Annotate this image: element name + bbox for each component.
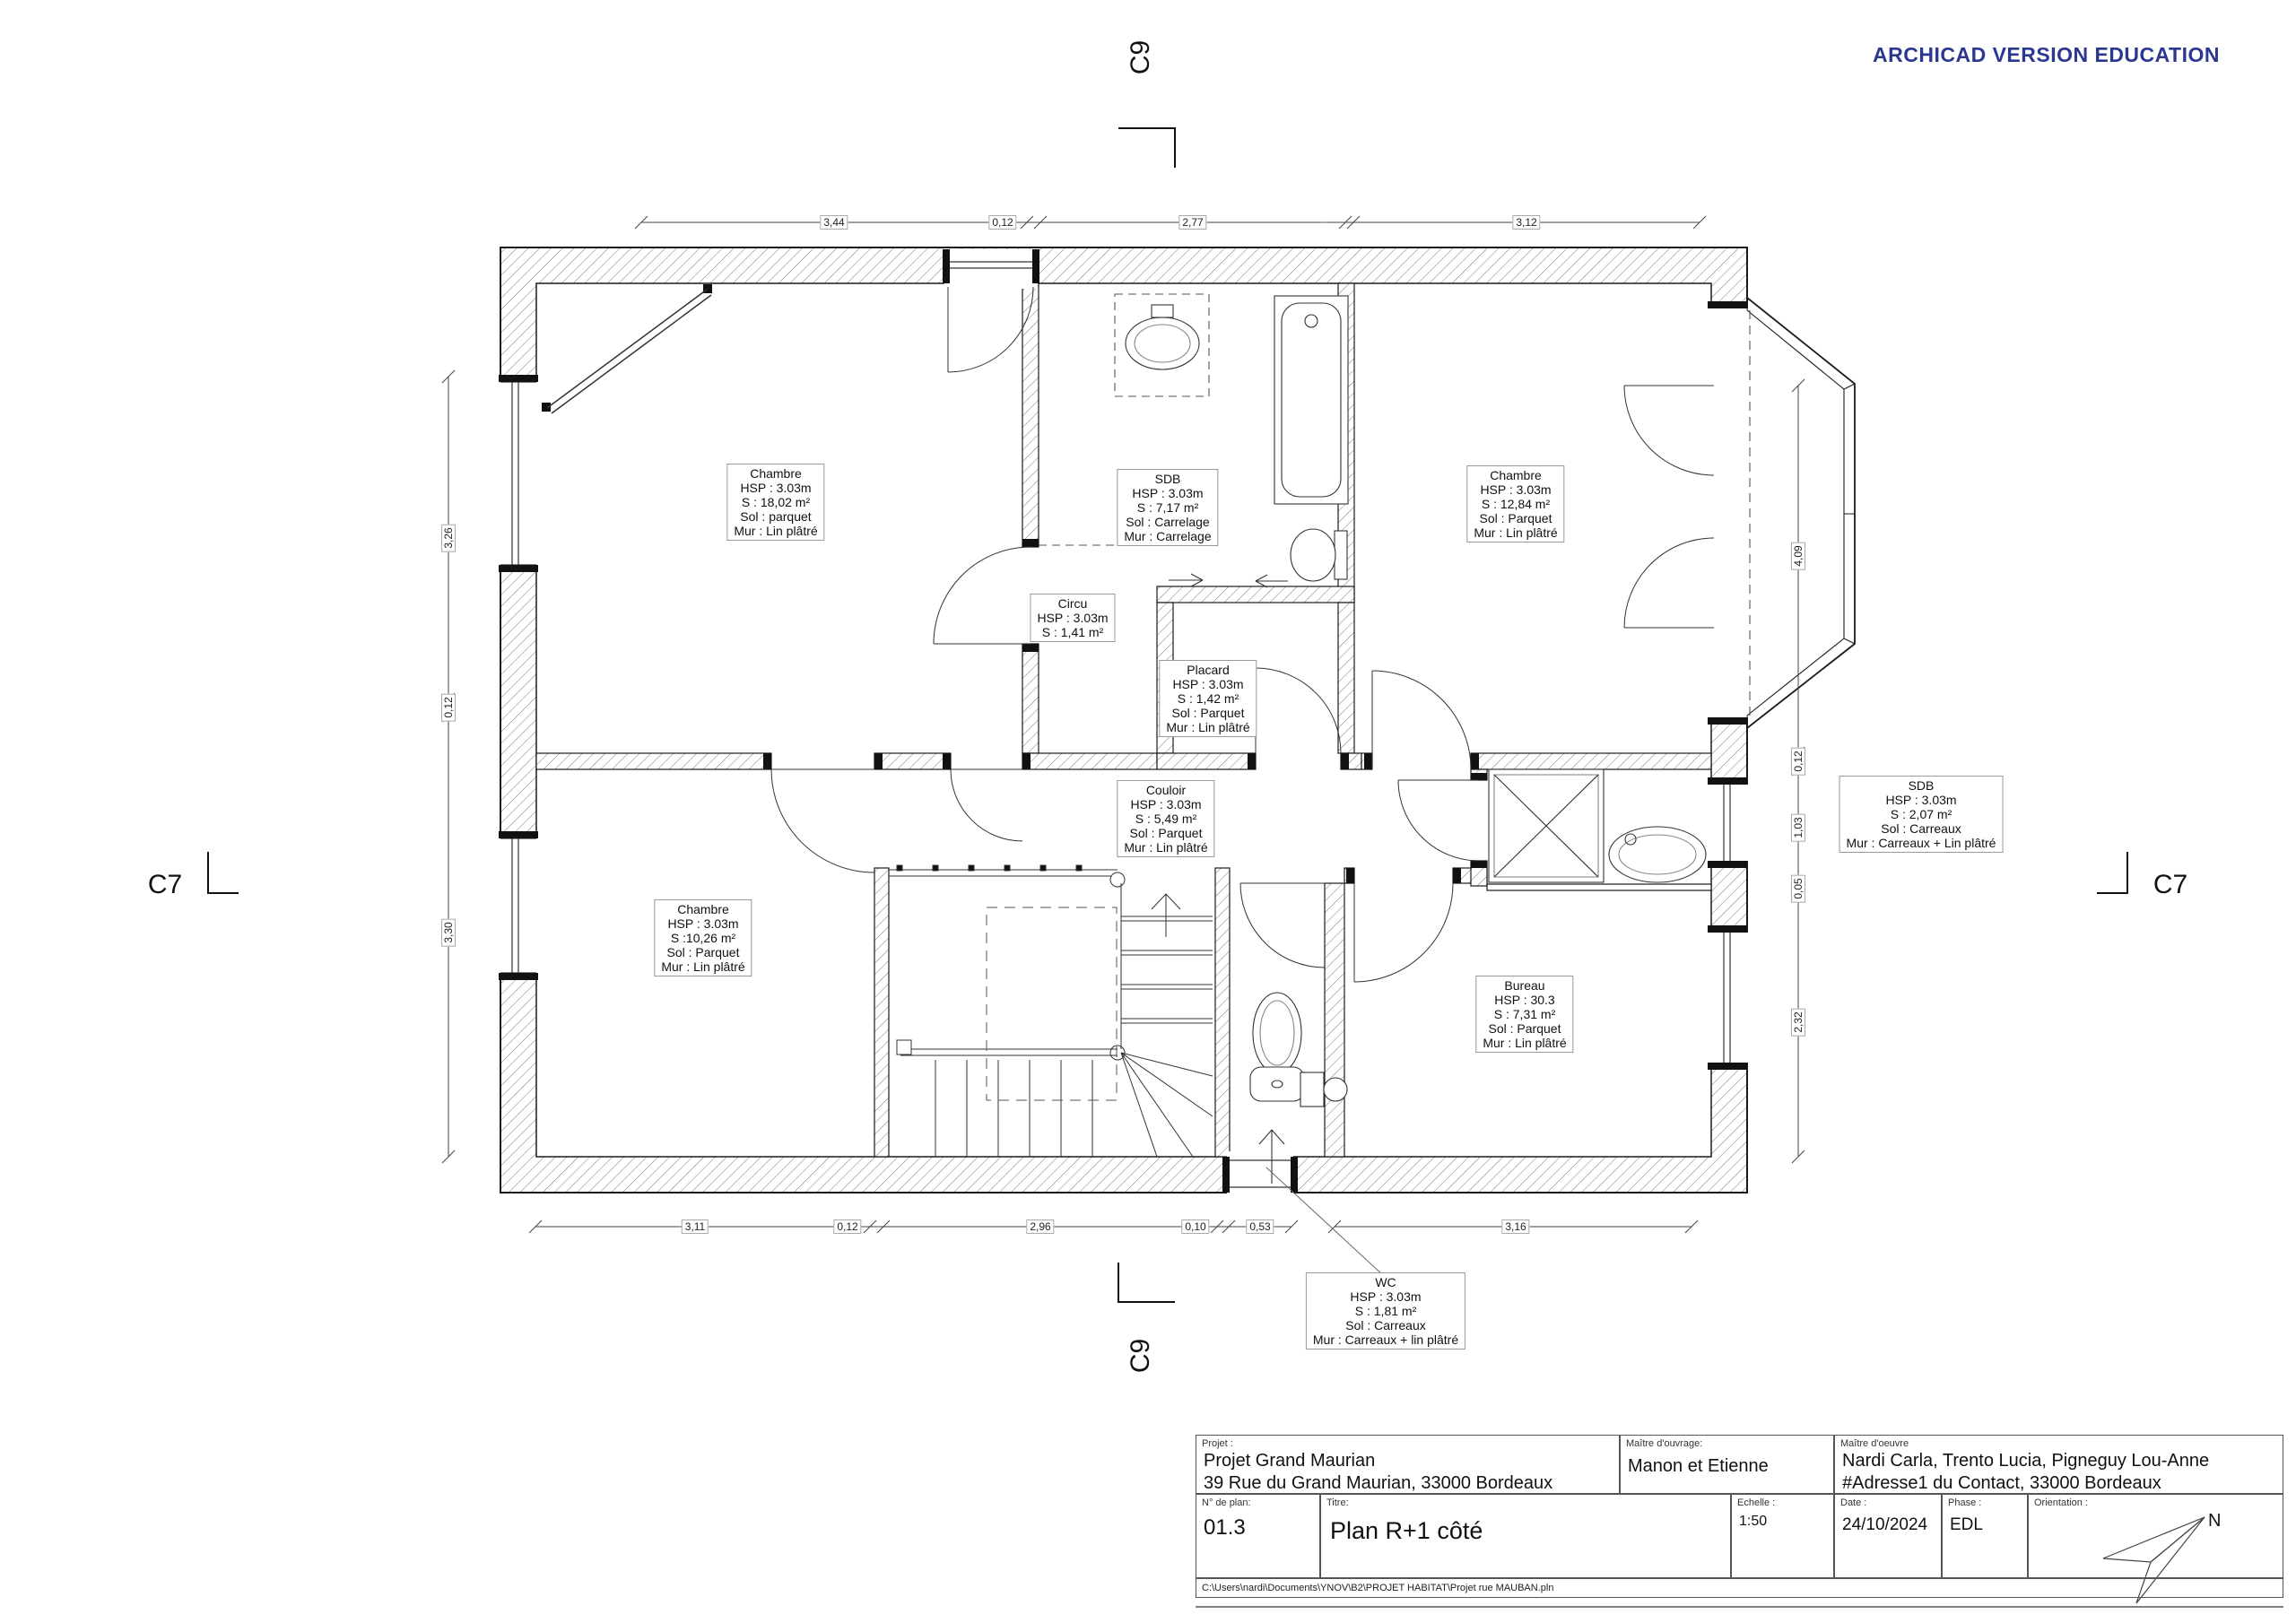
dim-left-3: 3,30	[441, 918, 456, 946]
room-area: S : 18,02 m²	[734, 495, 817, 509]
room-wall: Mur : Lin plâtré	[1474, 525, 1557, 540]
dim-right-2: 0,12	[1791, 747, 1805, 775]
room-name: Placard	[1166, 663, 1249, 677]
room-label-chambre-nw: Chambre HSP : 3.03m S : 18,02 m² Sol : p…	[726, 464, 824, 541]
room-area: S : 1,42 m²	[1166, 691, 1249, 706]
room-floor: Sol : Carreaux	[1313, 1318, 1458, 1332]
titleblock-architect-cell: Maître d'oeuvre Nardi Carla, Trento Luci…	[1834, 1435, 2283, 1494]
dim-top-2: 0,12	[988, 215, 1016, 230]
date-label: Date :	[1840, 1497, 1935, 1508]
room-name: Bureau	[1483, 978, 1566, 993]
room-label-wc: WC HSP : 3.03m S : 1,81 m² Sol : Carreau…	[1306, 1272, 1465, 1350]
phase-label: Phase :	[1948, 1497, 2022, 1508]
dim-left-2: 0,12	[441, 693, 456, 721]
room-wall: Mur : Lin plâtré	[661, 959, 744, 974]
room-area: S :10,26 m²	[661, 931, 744, 945]
room-hsp: HSP : 3.03m	[734, 481, 817, 495]
titleblock-owner-cell: Maître d'ouvrage: Manon et Etienne	[1620, 1435, 1834, 1494]
room-floor: Sol : Parquet	[1166, 706, 1249, 720]
dim-right-4: 0,05	[1791, 874, 1805, 902]
title-label: Titre:	[1326, 1497, 1725, 1508]
owner-name: Manon et Etienne	[1628, 1456, 1826, 1477]
room-label-sdb-est: SDB HSP : 3.03m S : 2,07 m² Sol : Carrea…	[1839, 776, 2004, 853]
toilet-fixture	[1250, 993, 1304, 1101]
dim-bottom-5: 0,53	[1246, 1219, 1274, 1234]
titleblock-date-cell: Date : 24/10/2024	[1834, 1494, 1942, 1578]
washbasin-fixture-sdb-top	[1256, 529, 1347, 587]
room-hsp: HSP : 3.03m	[1847, 793, 1996, 807]
room-area: S : 1,41 m²	[1037, 625, 1108, 639]
scale-label: Echelle :	[1737, 1497, 1828, 1508]
room-label-placard: Placard HSP : 3.03m S : 1,42 m² Sol : Pa…	[1159, 660, 1257, 737]
bathtub-fixture	[1274, 296, 1348, 504]
dimension-lines	[442, 216, 1805, 1233]
drawing-title: Plan R+1 côté	[1330, 1517, 1721, 1545]
room-floor: Sol : parquet	[734, 509, 817, 524]
room-name: SDB	[1124, 472, 1211, 486]
room-label-chambre-sw: Chambre HSP : 3.03m S :10,26 m² Sol : Pa…	[654, 899, 752, 976]
room-area: S : 7,31 m²	[1483, 1007, 1566, 1021]
dim-bottom-6: 3,16	[1501, 1219, 1529, 1234]
section-label-c7-left: C7	[148, 870, 182, 900]
owner-label: Maître d'ouvrage:	[1626, 1438, 1828, 1449]
room-area: S : 12,84 m²	[1474, 497, 1557, 511]
project-label: Projet :	[1202, 1438, 1613, 1449]
architect-address: #Adresse1 du Contact, 33000 Bordeaux	[1842, 1473, 2275, 1494]
dim-top-4	[1319, 221, 1326, 223]
sink-fixture-sdb-top	[1115, 294, 1209, 396]
section-label-c7-right: C7	[2153, 870, 2187, 900]
phase-value: EDL	[1950, 1515, 2020, 1535]
stairs	[889, 865, 1213, 1157]
room-area: S : 7,17 m²	[1124, 500, 1211, 515]
room-floor: Sol : Parquet	[1474, 511, 1557, 525]
dim-right-3: 1,03	[1791, 813, 1805, 841]
room-wall: Mur : Lin plâtré	[1166, 720, 1249, 734]
titleblock-plan-number-cell: N° de plan: 01.3	[1196, 1494, 1320, 1578]
titleblock-scale-cell: Echelle : 1:50	[1731, 1494, 1834, 1578]
section-label-c9-bottom: C9	[1126, 1339, 1156, 1373]
titleblock-title-cell: Titre: Plan R+1 côté	[1320, 1494, 1731, 1578]
room-hsp: HSP : 3.03m	[1037, 611, 1108, 625]
room-floor: Sol : Carrelage	[1124, 515, 1211, 529]
bathtub-fixture-sdb-right	[1609, 827, 1706, 882]
room-area: S : 5,49 m²	[1124, 811, 1207, 826]
floor-plan-page: ARCHICAD VERSION EDUCATION	[0, 0, 2296, 1623]
plan-number: 01.3	[1204, 1515, 1312, 1541]
titleblock-orientation-cell: Orientation :	[2028, 1494, 2283, 1578]
architect-label: Maître d'oeuvre	[1840, 1438, 2277, 1449]
room-name: SDB	[1847, 778, 1996, 793]
room-label-couloir: Couloir HSP : 3.03m S : 5,49 m² Sol : Pa…	[1117, 780, 1214, 857]
architect-names: Nardi Carla, Trento Lucia, Pigneguy Lou-…	[1842, 1451, 2275, 1471]
room-name: WC	[1313, 1275, 1458, 1289]
orientation-label: Orientation :	[2034, 1497, 2277, 1508]
titleblock-file-path: C:\Users\nardi\Documents\YNOV\B2\PROJET …	[1196, 1578, 2283, 1598]
project-address: 39 Rue du Grand Maurian, 33000 Bordeaux	[1204, 1473, 1612, 1494]
room-area: S : 1,81 m²	[1313, 1304, 1458, 1318]
dim-right-1: 4,09	[1791, 542, 1805, 569]
room-hsp: HSP : 3.03m	[1313, 1289, 1458, 1304]
room-label-chambre-ne: Chambre HSP : 3.03m S : 12,84 m² Sol : P…	[1466, 465, 1564, 542]
archicad-watermark: ARCHICAD VERSION EDUCATION	[1873, 43, 2220, 67]
dim-bottom-3: 2,96	[1026, 1219, 1054, 1234]
room-floor: Sol : Parquet	[661, 945, 744, 959]
room-hsp: HSP : 3.03m	[1166, 677, 1249, 691]
room-hsp: HSP : 30.3	[1483, 993, 1566, 1007]
room-hsp: HSP : 3.03m	[1124, 486, 1211, 500]
section-label-c9-top: C9	[1126, 40, 1156, 74]
scale-value: 1:50	[1739, 1514, 1826, 1530]
room-hsp: HSP : 3.03m	[1474, 482, 1557, 497]
dim-bottom-4: 0,10	[1181, 1219, 1209, 1234]
room-hsp: HSP : 3.03m	[1124, 797, 1207, 811]
room-label-sdb-nord: SDB HSP : 3.03m S : 7,17 m² Sol : Carrel…	[1117, 469, 1218, 546]
dim-bottom-1: 3,11	[682, 1219, 709, 1234]
room-name: Chambre	[734, 466, 817, 481]
plan-number-label: N° de plan:	[1202, 1497, 1314, 1508]
room-wall: Mur : Carreaux + lin plâtré	[1313, 1332, 1458, 1347]
room-name: Circu	[1037, 596, 1108, 611]
room-floor: Sol : Parquet	[1124, 826, 1207, 840]
project-name: Projet Grand Maurian	[1204, 1451, 1612, 1471]
titleblock-phase-cell: Phase : EDL	[1942, 1494, 2028, 1578]
room-wall: Mur : Carreaux + Lin plâtré	[1847, 836, 1996, 850]
room-label-bureau: Bureau HSP : 30.3 S : 7,31 m² Sol : Parq…	[1475, 976, 1573, 1053]
dim-bottom-2: 0,12	[833, 1219, 861, 1234]
room-wall: Mur : Lin plâtré	[1124, 840, 1207, 855]
bay-window	[1747, 298, 1855, 728]
room-area: S : 2,07 m²	[1847, 807, 1996, 821]
room-name: Chambre	[1474, 468, 1557, 482]
dim-right-5: 2,32	[1791, 1008, 1805, 1036]
room-label-circu: Circu HSP : 3.03m S : 1,41 m²	[1030, 594, 1115, 642]
dim-top-1: 3,44	[820, 215, 848, 230]
room-floor: Sol : Parquet	[1483, 1021, 1566, 1036]
room-hsp: HSP : 3.03m	[661, 916, 744, 931]
date-value: 24/10/2024	[1842, 1515, 1934, 1535]
room-floor: Sol : Carreaux	[1847, 821, 1996, 836]
dim-top-3: 2,77	[1178, 215, 1206, 230]
room-wall: Mur : Lin plâtré	[734, 524, 817, 538]
dim-top-5: 3,12	[1512, 215, 1540, 230]
room-name: Couloir	[1124, 783, 1207, 797]
shower-fixture	[1489, 769, 1604, 882]
room-wall: Mur : Lin plâtré	[1483, 1036, 1566, 1050]
room-wall: Mur : Carrelage	[1124, 529, 1211, 543]
dim-left-1: 3,26	[441, 524, 456, 551]
room-name: Chambre	[661, 902, 744, 916]
titleblock-project-cell: Projet : Projet Grand Maurian 39 Rue du …	[1196, 1435, 1620, 1494]
entry-arrow-sdb	[1169, 574, 1203, 586]
